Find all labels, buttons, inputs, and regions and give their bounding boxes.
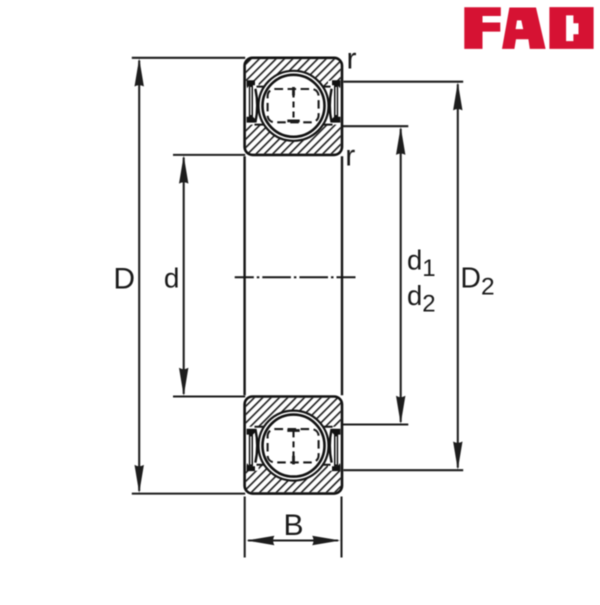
svg-text:B: B bbox=[283, 509, 303, 542]
svg-text:r: r bbox=[345, 139, 355, 172]
svg-text:d: d bbox=[164, 263, 180, 294]
svg-text:r: r bbox=[347, 43, 357, 76]
svg-text:D: D bbox=[113, 263, 135, 296]
